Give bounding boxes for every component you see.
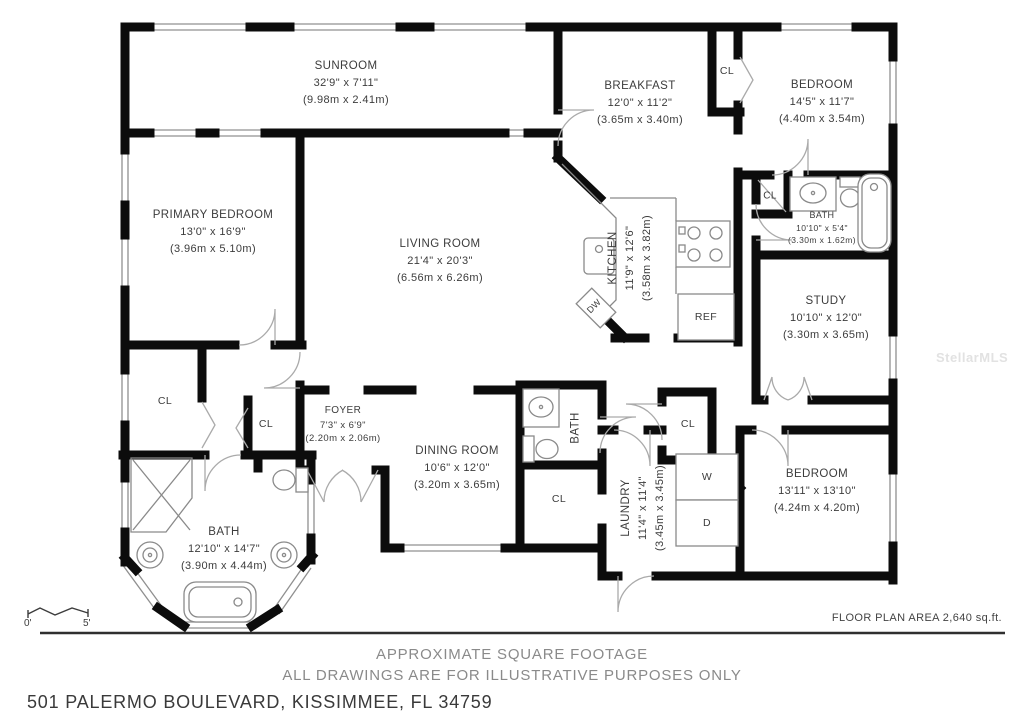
washer-dryer — [676, 454, 738, 546]
room-name: BATH — [567, 412, 584, 443]
room-dims-metric: (3.45m x 3.45m) — [652, 465, 669, 551]
room-name: LIVING ROOM — [397, 236, 483, 253]
room-label-bath-top: BATH 10'10" x 5'4" (3.30m x 1.62m) — [788, 209, 856, 247]
scale-start-label: 0' — [24, 618, 31, 629]
room-dims-metric: (3.20m x 3.65m) — [414, 477, 500, 494]
refrigerator-label: REF — [695, 311, 717, 323]
room-dims-imperial: 11'4" x 11'4" — [635, 465, 652, 551]
room-label-study: STUDY 10'10" x 12'0" (3.30m x 3.65m) — [783, 293, 869, 343]
room-dims-imperial: 21'4" x 20'3" — [397, 253, 483, 270]
room-name: PRIMARY BEDROOM — [153, 207, 274, 224]
room-label-living-room: LIVING ROOM 21'4" x 20'3" (6.56m x 6.26m… — [397, 236, 483, 286]
closet-label: CL — [763, 191, 777, 202]
room-name: LAUNDRY — [618, 465, 635, 551]
room-label-primary-bath: BATH 12'10" x 14'7" (3.90m x 4.44m) — [181, 524, 267, 574]
room-label-dining-room: DINING ROOM 10'6" x 12'0" (3.20m x 3.65m… — [414, 443, 500, 493]
room-dims-metric: (3.90m x 4.44m) — [181, 558, 267, 575]
room-dims-metric: (6.56m x 6.26m) — [397, 270, 483, 287]
scale-end-label: 5' — [83, 618, 90, 629]
watermark: StellarMLS — [936, 350, 1024, 365]
room-dims-metric: (4.24m x 4.20m) — [774, 500, 860, 517]
room-dims-metric: (9.98m x 2.41m) — [303, 92, 389, 109]
closet-label: CL — [158, 395, 172, 407]
room-label-laundry: LAUNDRY 11'4" x 11'4" (3.45m x 3.45m) — [618, 465, 668, 551]
room-name: STUDY — [783, 293, 869, 310]
room-name: BATH — [788, 209, 856, 222]
room-dims-imperial: 13'0" x 16'9" — [153, 224, 274, 241]
room-dims-imperial: 11'9" x 12'6" — [622, 215, 639, 301]
room-name: BREAKFAST — [597, 78, 683, 95]
room-dims-imperial: 10'10" x 12'0" — [783, 310, 869, 327]
room-label-bedroom-top: BEDROOM 14'5" x 11'7" (4.40m x 3.54m) — [779, 77, 865, 127]
floor-area-note: FLOOR PLAN AREA 2,640 sq.ft. — [832, 612, 1002, 624]
closet-label: CL — [552, 493, 566, 505]
room-name: FOYER — [305, 404, 380, 419]
room-dims-imperial: 32'9" x 7'11" — [303, 75, 389, 92]
room-dims-metric: (2.20m x 2.06m) — [305, 432, 380, 446]
stove-icon — [676, 221, 730, 267]
floor-plan: SUNROOM 32'9" x 7'11" (9.98m x 2.41m) BR… — [0, 0, 1024, 723]
closet-label: CL — [681, 418, 695, 430]
room-dims-imperial: 10'10" x 5'4" — [788, 222, 856, 234]
room-dims-imperial: 13'11" x 13'10" — [774, 483, 860, 500]
property-address: 501 PALERMO BOULEVARD, KISSIMMEE, FL 347… — [27, 692, 492, 713]
room-label-breakfast: BREAKFAST 12'0" x 11'2" (3.65m x 3.40m) — [597, 78, 683, 128]
dryer-label: D — [703, 517, 711, 529]
room-label-kitchen: KITCHEN 11'9" x 12'6" (3.58m x 3.82m) — [605, 215, 655, 301]
toilet-icon — [273, 470, 295, 490]
scale-bar — [28, 608, 88, 618]
room-name: KITCHEN — [605, 215, 622, 301]
room-name: BEDROOM — [774, 466, 860, 483]
hall-bath-fixtures — [523, 389, 559, 462]
room-dims-metric: (3.58m x 3.82m) — [639, 215, 656, 301]
room-name: BATH — [181, 524, 267, 541]
room-label-bath-middle: BATH — [567, 412, 584, 443]
disclaimer-line-2: ALL DRAWINGS ARE FOR ILLUSTRATIVE PURPOS… — [0, 667, 1024, 684]
room-dims-imperial: 14'5" x 11'7" — [779, 94, 865, 111]
room-dims-metric: (3.96m x 5.10m) — [153, 241, 274, 258]
washer-label: W — [702, 471, 712, 483]
room-dims-metric: (3.65m x 3.40m) — [597, 112, 683, 129]
room-label-foyer: FOYER 7'3" x 6'9" (2.20m x 2.06m) — [305, 404, 380, 446]
room-dims-metric: (3.30m x 3.65m) — [783, 327, 869, 344]
room-label-bedroom-bottom: BEDROOM 13'11" x 13'10" (4.24m x 4.20m) — [774, 466, 860, 516]
room-dims-metric: (4.40m x 3.54m) — [779, 111, 865, 128]
room-dims-imperial: 10'6" x 12'0" — [414, 460, 500, 477]
room-dims-imperial: 12'0" x 11'2" — [597, 95, 683, 112]
room-name: SUNROOM — [303, 58, 389, 75]
closet-label: CL — [720, 65, 734, 77]
room-dims-metric: (3.30m x 1.62m) — [788, 235, 856, 247]
room-dims-imperial: 12'10" x 14'7" — [181, 541, 267, 558]
disclaimer-line-1: APPROXIMATE SQUARE FOOTAGE — [0, 646, 1024, 663]
room-name: DINING ROOM — [414, 443, 500, 460]
room-label-primary-bedroom: PRIMARY BEDROOM 13'0" x 16'9" (3.96m x 5… — [153, 207, 274, 257]
room-label-sunroom: SUNROOM 32'9" x 7'11" (9.98m x 2.41m) — [303, 58, 389, 108]
room-name: BEDROOM — [779, 77, 865, 94]
closet-label: CL — [259, 418, 273, 430]
room-dims-imperial: 7'3" x 6'9" — [305, 418, 380, 432]
